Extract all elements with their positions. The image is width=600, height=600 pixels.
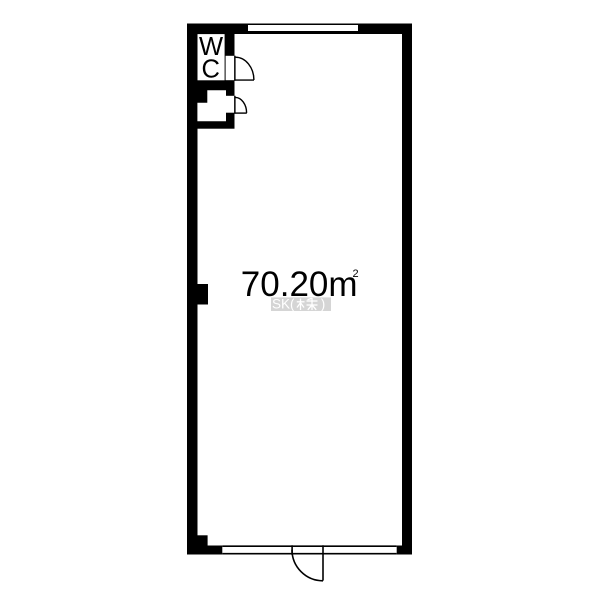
svg-text:): ) — [321, 297, 326, 312]
svg-text:SK(: SK( — [272, 297, 295, 312]
svg-text:C: C — [201, 56, 219, 84]
svg-text:2: 2 — [353, 268, 359, 280]
